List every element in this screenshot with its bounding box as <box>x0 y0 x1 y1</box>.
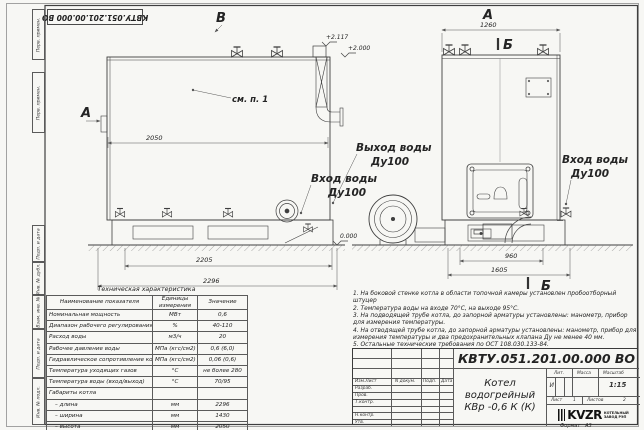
sheet-value: 1 <box>573 398 576 403</box>
table-row: – длинамм2296 <box>47 399 248 410</box>
valve-icon <box>561 208 571 217</box>
note-line: 3. На подводящей трубе котла, до запорно… <box>353 313 637 328</box>
table-header-row: Наименование показателя Единицыизмерения… <box>47 296 248 310</box>
col-header-name: Наименование показателя <box>47 296 153 310</box>
note-line: 2. Температура воды на входе 70°С, на вы… <box>353 306 637 313</box>
boiler-front-view <box>442 55 565 245</box>
table-row: Номинальная мощностьМВт0,6 <box>47 310 248 321</box>
sheet-label: Лист <box>551 398 562 403</box>
format-value: А3 <box>585 423 592 429</box>
valve-icon <box>460 45 471 55</box>
inlet-water-left-dn: Ду100 <box>327 187 366 199</box>
valve-icon <box>115 209 124 218</box>
inlet-water-left-label: Вход воды <box>311 173 377 185</box>
row-razrab: Разраб. <box>355 386 372 391</box>
elev-roof-label: +2.000 <box>348 45 370 52</box>
margin-box: Инв. № дубл. <box>32 262 45 295</box>
row-nkontr: Н.контр. <box>355 413 375 418</box>
table-row: Габариты котла <box>47 388 248 399</box>
tech-table-title: Техническая характеристика <box>46 286 247 293</box>
dim-2296: 2296 <box>203 277 220 285</box>
elevation-mark <box>333 241 348 245</box>
row-prov: Пров. <box>355 393 368 398</box>
product-name-line1: Котел водогрейный <box>454 378 546 402</box>
technical-notes: 1. На боковой стенке котла в области топ… <box>353 291 637 350</box>
kvzr-logo-icon <box>558 409 565 421</box>
top-stamp: КВТУ.051.201.00.000 ВО <box>47 9 143 25</box>
see-note-label: см. п. 1 <box>232 95 268 105</box>
margin-box: Подп. и дата <box>32 329 45 378</box>
view-a-top-label: А <box>482 8 493 23</box>
col-date: Дата <box>441 379 452 384</box>
view-a-side-label: А <box>80 106 91 121</box>
note-line: 1. На боковой стенке котла в области топ… <box>353 291 637 306</box>
ash-door <box>474 224 512 239</box>
ground-line <box>88 245 633 251</box>
elevation-mark <box>322 42 337 46</box>
tech-table: Наименование показателя Единицыизмерения… <box>46 295 248 430</box>
margin-box-label: Перв. примен. <box>36 17 41 52</box>
elev-top-label: +2.117 <box>326 34 348 41</box>
margin-box-label: Взам. инв. № <box>36 296 41 327</box>
view-b-label: В <box>216 11 226 26</box>
lit-value: И <box>550 382 555 389</box>
col-sign: Подп. <box>423 379 436 384</box>
margin-box-label: Подп. и дата <box>36 228 41 259</box>
lit-header: Лит. <box>554 371 564 376</box>
margin-box-label: Подп. и дата <box>36 338 41 369</box>
table-row: Гидравлическое сопротивление котлаМПа (к… <box>47 354 248 365</box>
dim-2050: 2050 <box>146 134 163 142</box>
scale-value: 1:15 <box>609 381 626 389</box>
table-row: Расход водым3/ч20 <box>47 332 248 343</box>
note-line: 4. На отводящей трубе котла, до запорной… <box>353 328 637 343</box>
boiler-side-view <box>101 46 343 245</box>
table-row: Рабочее давление водыМПа (кгс/см2)0,6 (6… <box>47 343 248 354</box>
row-utv: Утв. <box>355 420 364 425</box>
dim-2205: 2205 <box>196 256 213 264</box>
flange-circle <box>276 200 298 222</box>
valve-icon <box>162 209 171 218</box>
format-label: Формат <box>560 423 580 429</box>
front-view-valves <box>444 45 571 217</box>
inlet-water-right-dn: Ду100 <box>570 168 609 180</box>
document-number: КВТУ.051.201.00.000 ВО <box>453 349 639 369</box>
outlet-water-label: Выход воды <box>356 142 432 154</box>
valve-icon <box>223 209 232 218</box>
side-view-valves <box>115 47 312 232</box>
col-header-units: Единицыизмерения <box>153 296 198 310</box>
title-block: КВТУ.051.201.00.000 ВО Изм.Лист N докум.… <box>352 348 638 425</box>
margin-box: Перв. примен. <box>32 72 45 133</box>
drawing-sheet: 2050 2205 2296 1260 960 1605 +2.117 +2.0… <box>0 0 644 430</box>
margin-box-label: Инв. № дубл. <box>36 263 41 294</box>
format-note: Формат А3 <box>560 423 644 429</box>
elevation-mark <box>341 53 356 57</box>
product-name: Котел водогрейный КВр -0,6 К (К) <box>453 369 546 426</box>
valve-icon <box>272 47 283 57</box>
margin-box: Взам. инв. № <box>32 295 45 329</box>
furnace-door <box>467 164 533 218</box>
kvzr-logo: KVZR КОТЕЛЬНЫЙ ЗАВОД РЭП <box>551 406 636 424</box>
margin-box: Инв. № подл. <box>32 378 45 425</box>
inlet-water-right-label: Вход воды <box>562 154 628 166</box>
col-header-value: Значение <box>198 296 248 310</box>
table-row: – ширинамм1430 <box>47 410 248 421</box>
scale-header: Масштаб <box>603 371 624 376</box>
valve-icon <box>444 45 455 55</box>
valve-icon <box>538 45 549 55</box>
dim-1605: 1605 <box>491 266 508 274</box>
sheets-label: Листов <box>587 398 603 403</box>
top-stamp-number: КВТУ.051.201.00.000 ВО <box>42 13 148 22</box>
logo-subtext-line2: ЗАВОД РЭП <box>604 415 629 419</box>
table-row: Температура уходящих газов°Сне более 280 <box>47 365 248 376</box>
row-tkontr: Т.контр. <box>355 400 374 405</box>
table-row: Температура воды (вход/выход)°С70/95 <box>47 377 248 388</box>
section-b-top-label: Б <box>503 38 513 53</box>
valve-icon <box>304 224 313 232</box>
table-row: Диапазон рабочего регулирования%40-110 <box>47 321 248 332</box>
kvzr-logo-text: KVZR <box>567 408 602 422</box>
title-block-right: Лит. Масса Масштаб И 1:15 Лист 1 Листов … <box>546 369 639 426</box>
outlet-water-dn: Ду100 <box>370 156 409 168</box>
col-izm: Изм.Лист <box>355 379 376 384</box>
margin-box: Подп. и дата <box>32 225 45 262</box>
valve-icon <box>232 47 243 57</box>
sheets-value: 2 <box>623 398 626 403</box>
col-doc: N докум. <box>395 379 415 384</box>
margin-box-label: Инв. № подл. <box>36 386 41 418</box>
product-name-line2: КВр -0,6 К (К) <box>454 402 546 414</box>
margin-box-label: Перв. примен. <box>36 85 41 120</box>
mass-header: Масса <box>577 371 591 376</box>
dim-960: 960 <box>505 252 517 260</box>
table-row: – высотамм2050 <box>47 421 248 430</box>
elev-zero-label: 0.000 <box>340 233 357 240</box>
margin-box: Перв. примен. <box>32 9 45 60</box>
